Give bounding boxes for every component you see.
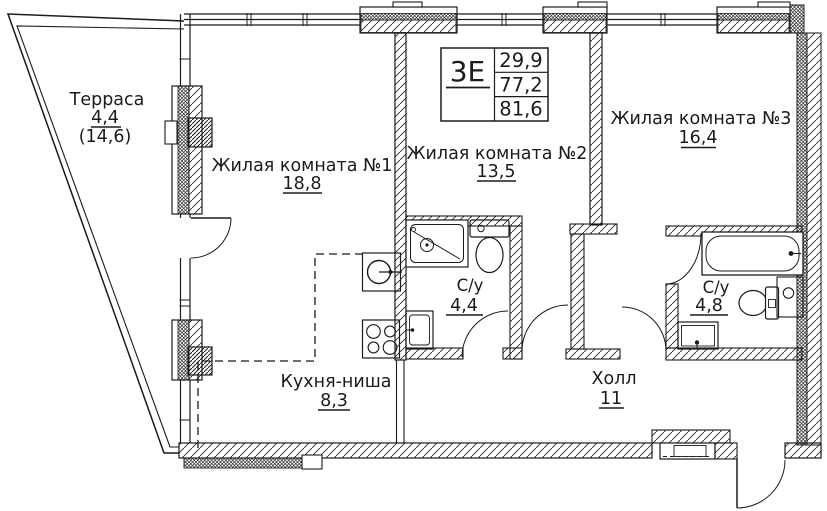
wall-pier bbox=[543, 2, 607, 33]
room-area-hall: 11 bbox=[600, 389, 622, 409]
room-label-room2: Жилая комната №2 bbox=[407, 144, 588, 164]
title-block: 3Е 29,9 77,2 81,6 bbox=[441, 48, 548, 121]
room-area-bath2: 4,8 bbox=[695, 296, 723, 316]
terrace-door bbox=[191, 218, 231, 258]
room-area-terrace-full: (14,6) bbox=[79, 127, 132, 147]
wall-pier bbox=[360, 2, 457, 33]
door-arc bbox=[191, 218, 231, 258]
room-label-kitchen: Кухня-ниша bbox=[281, 372, 392, 392]
door-arc bbox=[737, 460, 785, 508]
bottom-exterior-wall bbox=[179, 430, 821, 508]
toilet bbox=[739, 287, 779, 319]
door-arc-room2 bbox=[522, 305, 568, 351]
door-arc-bathroom2 bbox=[666, 233, 701, 284]
room-area-bath1: 4,4 bbox=[450, 296, 478, 316]
column bbox=[188, 118, 212, 147]
room-label-bath1: С/у bbox=[457, 276, 484, 295]
window-band bbox=[607, 14, 717, 25]
window-band bbox=[184, 14, 360, 25]
wall-room2-room3 bbox=[590, 33, 602, 225]
wall-block bbox=[172, 320, 212, 380]
shower-tray bbox=[406, 220, 468, 267]
room-area-room2: 13,5 bbox=[477, 162, 516, 182]
bathtub bbox=[702, 232, 803, 275]
window-band bbox=[457, 14, 543, 25]
toilet bbox=[470, 220, 509, 273]
floor-plan-drawing: 3Е 29,9 77,2 81,6 Терраса 4,4 (14,6) Жил… bbox=[0, 0, 827, 511]
unit-type: 3Е bbox=[450, 55, 486, 88]
room-area-room1: 18,8 bbox=[283, 174, 322, 194]
washing-machine bbox=[678, 322, 718, 349]
entrance-door bbox=[737, 459, 785, 508]
living-area-value: 29,9 bbox=[499, 49, 542, 72]
door-arc-bathroom1 bbox=[462, 311, 508, 357]
room-area-room3: 16,4 bbox=[679, 128, 718, 148]
wall-pier bbox=[717, 2, 804, 33]
apartment-area-value: 77,2 bbox=[499, 74, 542, 97]
terrace-wall bbox=[8, 14, 184, 453]
kitchen-hall-partition bbox=[397, 360, 405, 443]
wall-block bbox=[165, 86, 212, 214]
kitchen-niche-boundary bbox=[198, 254, 363, 448]
washing-machine bbox=[406, 311, 433, 349]
floor-plan: 3Е 29,9 77,2 81,6 Терраса 4,4 (14,6) Жил… bbox=[0, 0, 827, 511]
room-area-kitchen: 8,3 bbox=[320, 391, 348, 411]
room-label-room1: Жилая комната №1 bbox=[212, 156, 393, 176]
wall-room1-room2 bbox=[395, 33, 406, 360]
room-label-room3: Жилая комната №3 bbox=[611, 109, 792, 129]
room-label-terrace: Терраса bbox=[69, 90, 145, 110]
total-area-value: 81,6 bbox=[499, 98, 542, 121]
room-area-terrace: 4,4 bbox=[91, 108, 119, 128]
door-arc-corridor bbox=[622, 307, 666, 351]
stove bbox=[363, 320, 400, 358]
top-exterior-wall bbox=[184, 2, 804, 33]
room-label-hall: Холл bbox=[591, 369, 636, 389]
entry-shaft bbox=[652, 430, 737, 459]
room-label-bath2: С/у bbox=[703, 278, 730, 297]
